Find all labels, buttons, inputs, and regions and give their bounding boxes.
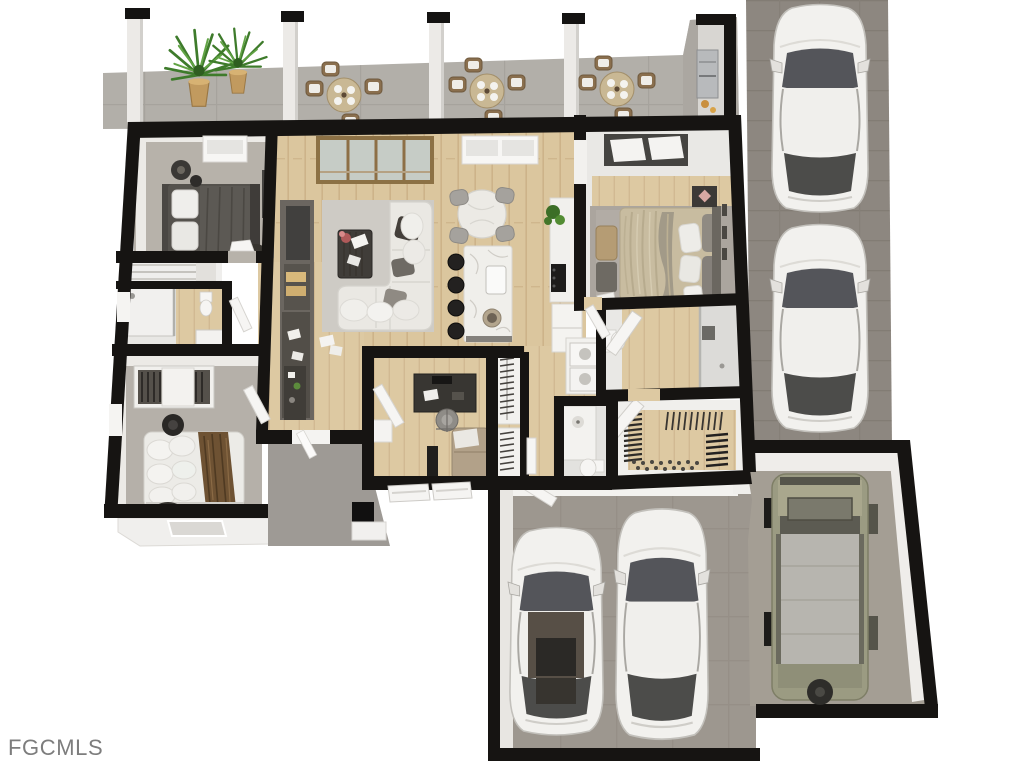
svg-text:FGCMLS: FGCMLS [8,735,103,760]
